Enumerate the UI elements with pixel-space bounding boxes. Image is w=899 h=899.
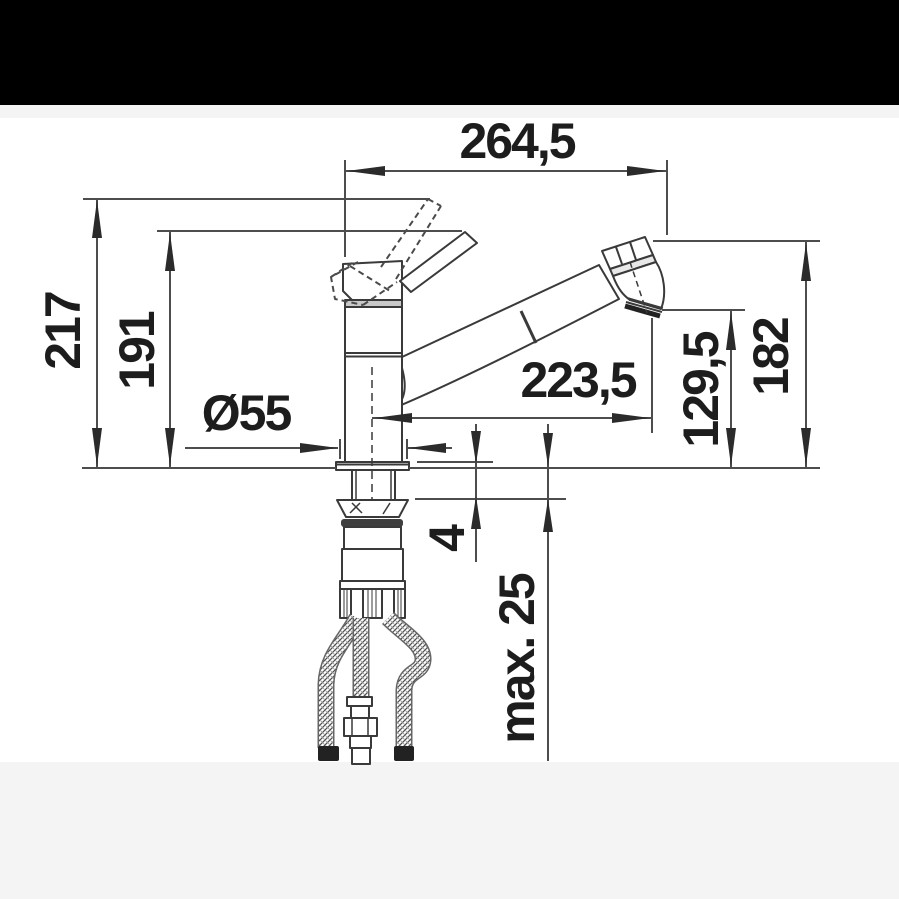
lever-handle [400, 232, 477, 292]
dim-label-flange-gap: 4 [418, 526, 476, 552]
dim-label-overall-width: 264,5 [459, 112, 574, 170]
hose-end-cap-left [318, 746, 339, 761]
o-ring [341, 519, 403, 527]
dim-label-height-to-spout-body: 191 [108, 312, 166, 389]
hose-end-cap-right [394, 746, 414, 761]
dim-label-spout-reach: 223,5 [520, 351, 635, 409]
hose-guide-band [340, 581, 405, 589]
mounting-block [342, 549, 403, 581]
technical-drawing-svg [0, 0, 899, 899]
dim-label-head-top-height: 182 [742, 318, 800, 395]
dim-label-max-deck-thickness: max. 25 [488, 574, 546, 743]
threaded-shank [352, 470, 395, 500]
mounting-nut [344, 527, 401, 549]
dim-label-outlet-height: 129,5 [672, 332, 730, 447]
base-column [345, 307, 402, 462]
mounting-washer [337, 500, 408, 517]
dim-label-base-diameter: Ø55 [202, 384, 291, 442]
dim-label-height-to-lever-tip: 217 [34, 292, 92, 369]
pullout-hose-fitting [344, 697, 377, 764]
faucet-dimension-drawing: 264,5 217 191 Ø55 223,5 129,5 182 4 max.… [0, 0, 899, 899]
